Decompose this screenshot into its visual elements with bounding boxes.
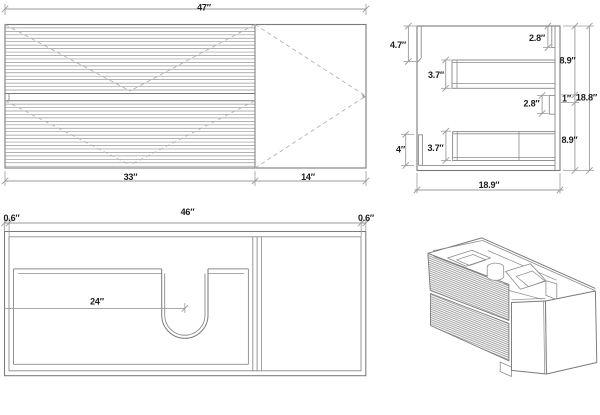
svg-text:0.6″: 0.6″ xyxy=(358,213,375,223)
svg-text:0.6″: 0.6″ xyxy=(3,213,20,223)
svg-text:46″: 46″ xyxy=(181,207,196,217)
svg-text:8.9″: 8.9″ xyxy=(561,135,578,145)
svg-text:4″: 4″ xyxy=(396,145,406,155)
svg-text:47″: 47″ xyxy=(197,3,212,13)
svg-text:33″: 33″ xyxy=(124,172,139,182)
svg-text:4.7″: 4.7″ xyxy=(390,40,407,50)
svg-text:3.7″: 3.7″ xyxy=(428,70,445,80)
svg-text:2.8″: 2.8″ xyxy=(529,33,546,43)
svg-text:18.9″: 18.9″ xyxy=(479,180,501,190)
svg-text:3.7″: 3.7″ xyxy=(427,143,444,153)
svg-text:2.8″: 2.8″ xyxy=(523,98,540,108)
svg-text:24″: 24″ xyxy=(90,297,105,307)
svg-text:1″: 1″ xyxy=(562,94,572,104)
svg-text:18.8″: 18.8″ xyxy=(576,93,598,103)
svg-text:8.9″: 8.9″ xyxy=(559,55,576,65)
svg-text:14″: 14″ xyxy=(301,172,316,182)
